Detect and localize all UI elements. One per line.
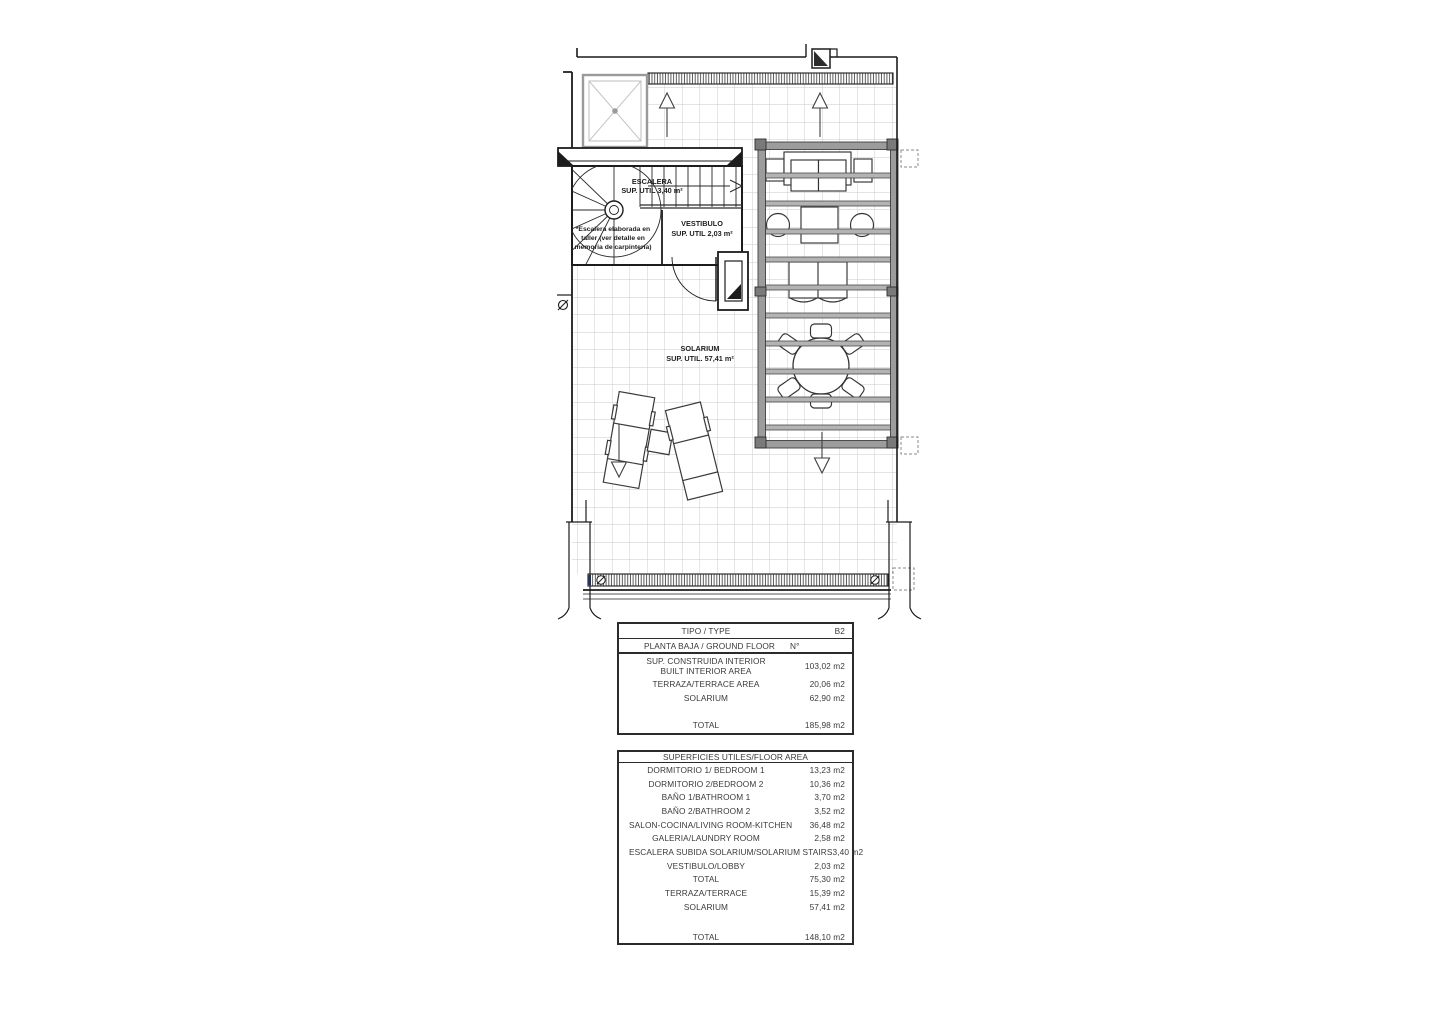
stair-note-line3: memoria de carpintería) (574, 244, 651, 251)
drain-pipe-symbol (558, 300, 568, 310)
built-areas-table: TIPO / TYPE B2 PLANTA BAJA / GROUND FLOO… (617, 622, 854, 735)
stair-landing-beam (558, 148, 742, 166)
table-row: TIPO / TYPE B2 (619, 624, 852, 639)
side-stool-right (854, 159, 872, 182)
left-wall (557, 72, 572, 522)
table-row: BAÑO 1/BATHROOM 1 3,70 m2 (619, 790, 852, 804)
floorplan-page: ESCALERA SUP. UTIL 3,40 m² VESTIBULO SUP… (0, 0, 1440, 1024)
table-row: SALON-COCINA/LIVING ROOM-KITCHEN 36,48 m… (619, 818, 852, 832)
table-row: GALERIA/LAUNDRY ROOM 2,58 m2 (619, 831, 852, 845)
table-row: BAÑO 2/BATHROOM 2 3,52 m2 (619, 804, 852, 818)
table-row: VESTIBULO/LOBBY 2,03 m2 (619, 859, 852, 873)
table-row: TOTAL 75,30 m2 (619, 873, 852, 887)
table-row: TERRAZA/TERRACE AREA 20,06 m2 (619, 677, 852, 691)
stair-note-line2: taller (ver detalle en (581, 235, 645, 242)
escalera-area: SUP. UTIL 3,40 m² (621, 186, 683, 195)
solarium-label: SOLARIUM (681, 344, 720, 353)
coffee-table (801, 207, 838, 243)
dining-chair (811, 324, 832, 338)
table-row: ESCALERA SUBIDA SOLARIUM/SOLARIUM STAIRS… (619, 845, 852, 859)
escalera-label: ESCALERA (632, 177, 673, 186)
table-row: SUP. CONSTRUIDA INTERIOR BUILT INTERIOR … (619, 654, 852, 677)
table-row: DORMITORIO 2/BEDROOM 2 10,36 m2 (619, 777, 852, 791)
vestibulo-area: SUP. UTIL 2,03 m² (671, 229, 733, 238)
table-row: SOLARIUM 62,90 m2 (619, 691, 852, 705)
solarium-area: SUP. UTIL. 57,41 m² (666, 354, 734, 363)
table-header: SUPERFICIES UTILES/FLOOR AREA (619, 752, 852, 763)
table-row: SOLARIUM 57,41 m2 (619, 900, 852, 914)
vestibulo-label: VESTIBULO (681, 219, 723, 228)
stair-note-line1: *Escalera elaborada en (576, 226, 650, 233)
floor-plan: ESCALERA SUP. UTIL 3,40 m² VESTIBULO SUP… (540, 30, 960, 630)
table-row: TERRAZA/TERRACE 15,39 m2 (619, 886, 852, 900)
table-row: DORMITORIO 1/ BEDROOM 1 13,23 m2 (619, 763, 852, 777)
useful-areas-table: SUPERFICIES UTILES/FLOOR AREA DORMITORIO… (617, 750, 854, 945)
spiral-staircase (554, 150, 742, 270)
chimney-pillar (718, 252, 748, 310)
bottom-railing (583, 574, 891, 599)
table-row-total: TOTAL 148,10 m2 (619, 931, 852, 945)
roof-vent (806, 44, 837, 68)
skylight (583, 75, 647, 147)
table-row-total: TOTAL 185,98 m2 (619, 718, 852, 732)
table-row: PLANTA BAJA / GROUND FLOOR N° (619, 639, 852, 654)
